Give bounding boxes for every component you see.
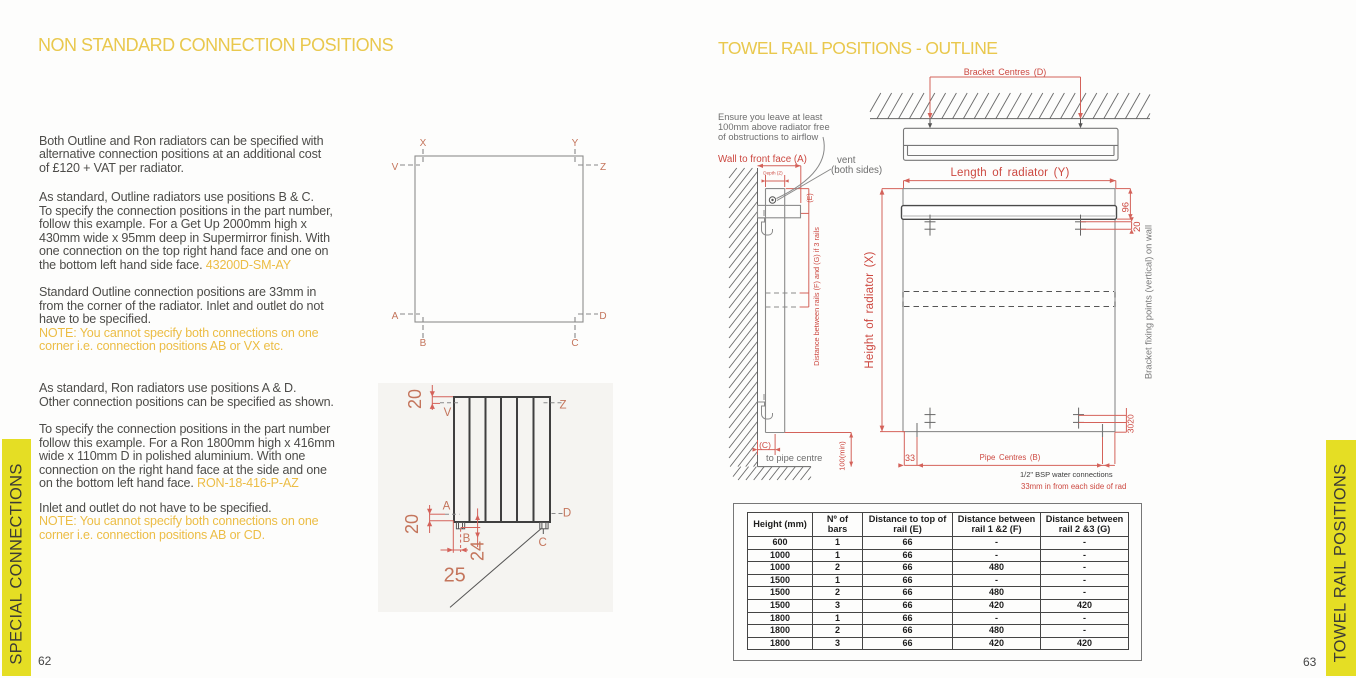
svg-text:Bracket fixing points (vertica: Bracket fixing points (vertical) on wall [1143, 225, 1154, 379]
svg-text:V: V [444, 407, 452, 419]
svg-text:Length of radiator (Y): Length of radiator (Y) [950, 167, 1069, 179]
svg-text:20: 20 [402, 514, 422, 534]
svg-text:to pipe centre: to pipe centre [766, 453, 822, 463]
svg-text:100(min): 100(min) [838, 441, 847, 471]
svg-text:25: 25 [444, 565, 466, 587]
svg-text:20: 20 [1132, 221, 1143, 232]
svg-text:(C): (C) [759, 440, 771, 450]
svg-text:(E): (E) [807, 193, 814, 202]
svg-text:1/2" BSP water connections: 1/2" BSP water connections [1020, 470, 1113, 479]
svg-text:Ensure you leave at least: Ensure you leave at least [718, 112, 823, 122]
svg-text:Pipe Centres (B): Pipe Centres (B) [980, 453, 1041, 462]
svg-text:X: X [420, 138, 427, 149]
svg-text:Wall to front face (A): Wall to front face (A) [718, 154, 807, 165]
svg-text:Bracket Centres (D): Bracket Centres (D) [964, 67, 1047, 77]
svg-text:D: D [563, 508, 571, 520]
svg-text:B: B [420, 338, 427, 349]
svg-text:of obstructions to airflow: of obstructions to airflow [718, 132, 819, 142]
svg-text:30: 30 [1126, 424, 1136, 434]
svg-text:20: 20 [1126, 414, 1136, 424]
svg-text:33: 33 [905, 453, 915, 463]
svg-text:C: C [539, 537, 547, 549]
svg-text:Distance between rails (F) and: Distance between rails (F) and (G) if 3 … [812, 227, 821, 366]
svg-text:96: 96 [1121, 202, 1132, 213]
svg-text:Z: Z [600, 162, 606, 173]
svg-text:(both sides): (both sides) [831, 165, 882, 176]
svg-text:20: 20 [405, 389, 425, 409]
svg-text:V: V [392, 162, 399, 173]
svg-text:C: C [571, 338, 578, 349]
svg-text:33mm in from each side of rad: 33mm in from each side of rad [1021, 482, 1126, 491]
svg-text:A: A [392, 311, 399, 322]
svg-text:24: 24 [467, 541, 487, 561]
svg-text:100mm above radiator free: 100mm above radiator free [718, 122, 830, 132]
svg-text:A: A [443, 501, 451, 513]
svg-text:Height of radiator (X): Height of radiator (X) [864, 251, 876, 368]
svg-text:D: D [599, 311, 606, 322]
svg-text:Z: Z [559, 399, 566, 411]
svg-text:Y: Y [572, 138, 579, 149]
svg-text:Depth (Z): Depth (Z) [763, 171, 783, 176]
